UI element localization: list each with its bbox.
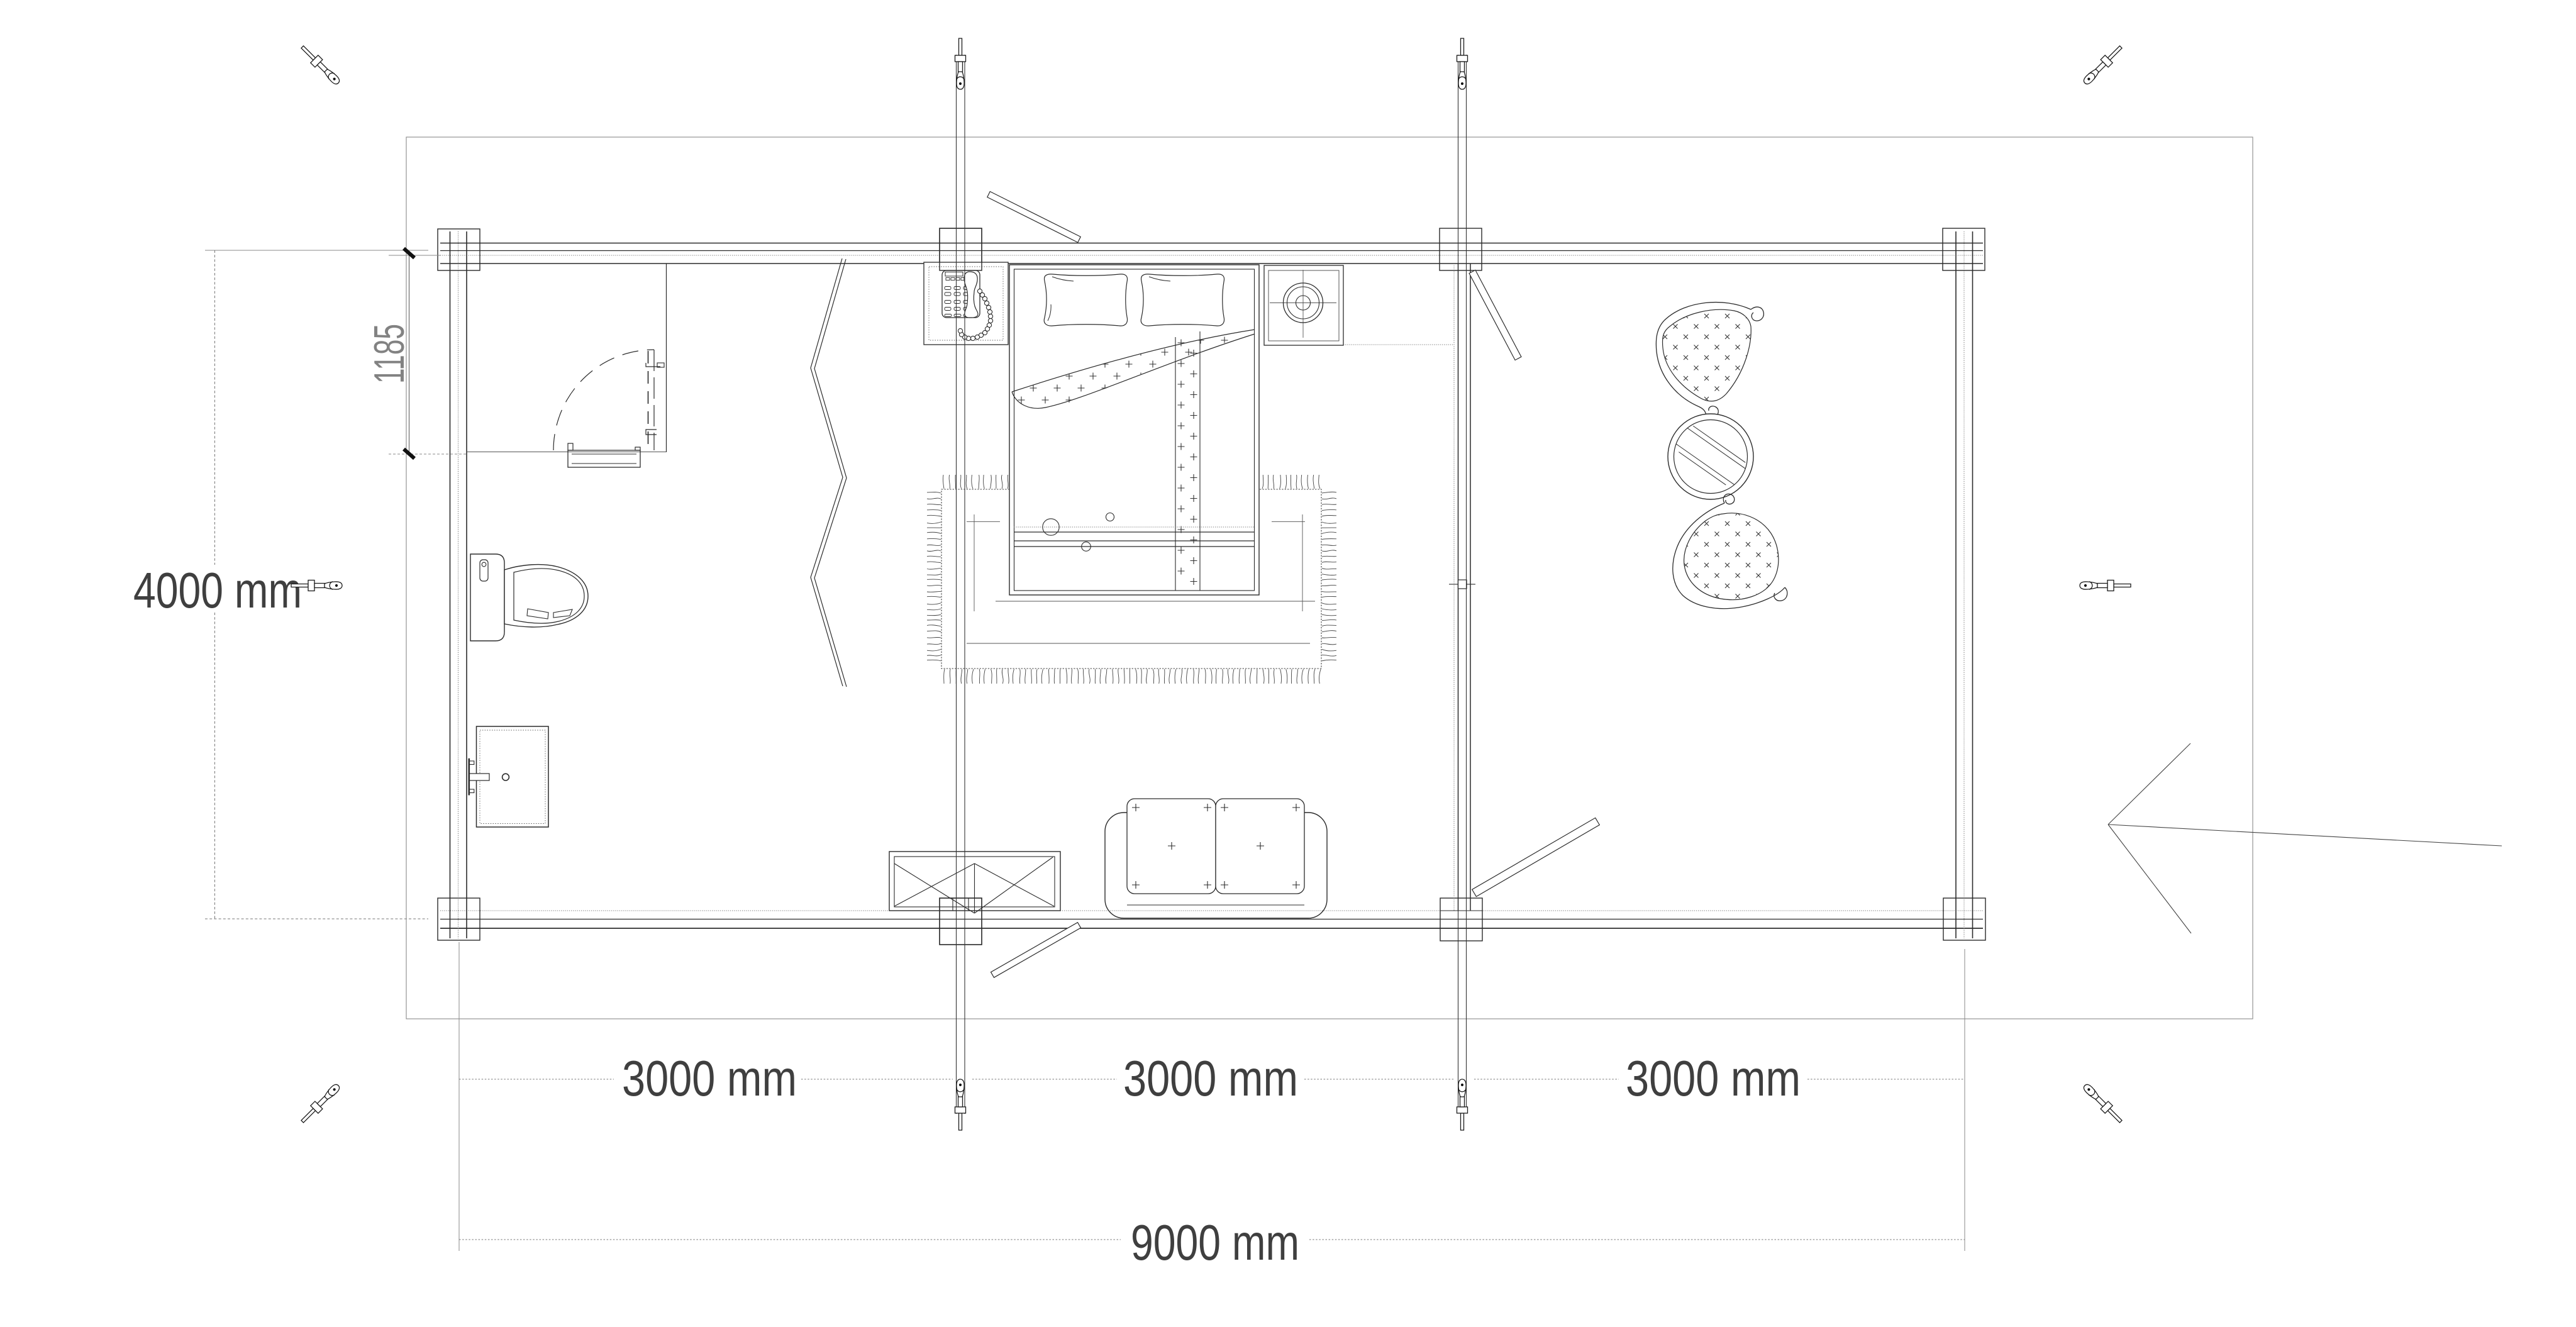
svg-text:3000 mm: 3000 mm [1123,1050,1298,1106]
svg-text:9000 mm: 9000 mm [1131,1214,1299,1270]
svg-text:3000 mm: 3000 mm [622,1050,797,1106]
svg-text:1185: 1185 [365,324,413,384]
svg-text:3000 mm: 3000 mm [1626,1050,1801,1106]
svg-text:4000 mm: 4000 mm [133,562,302,618]
